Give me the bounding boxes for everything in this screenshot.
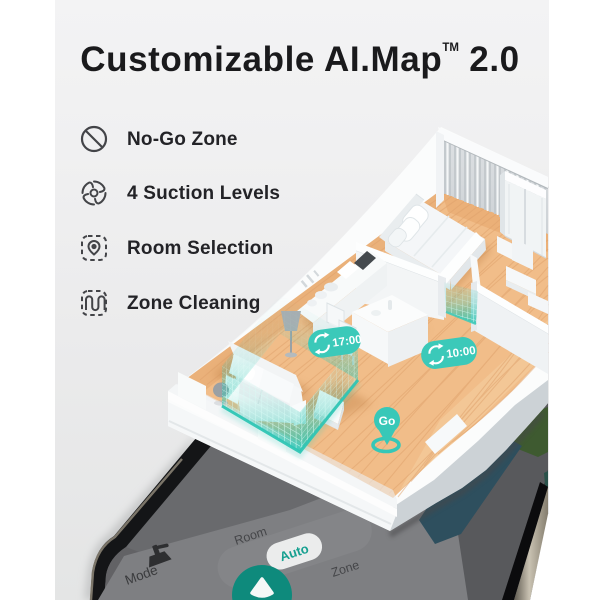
svg-text:Go: Go [379, 414, 396, 428]
